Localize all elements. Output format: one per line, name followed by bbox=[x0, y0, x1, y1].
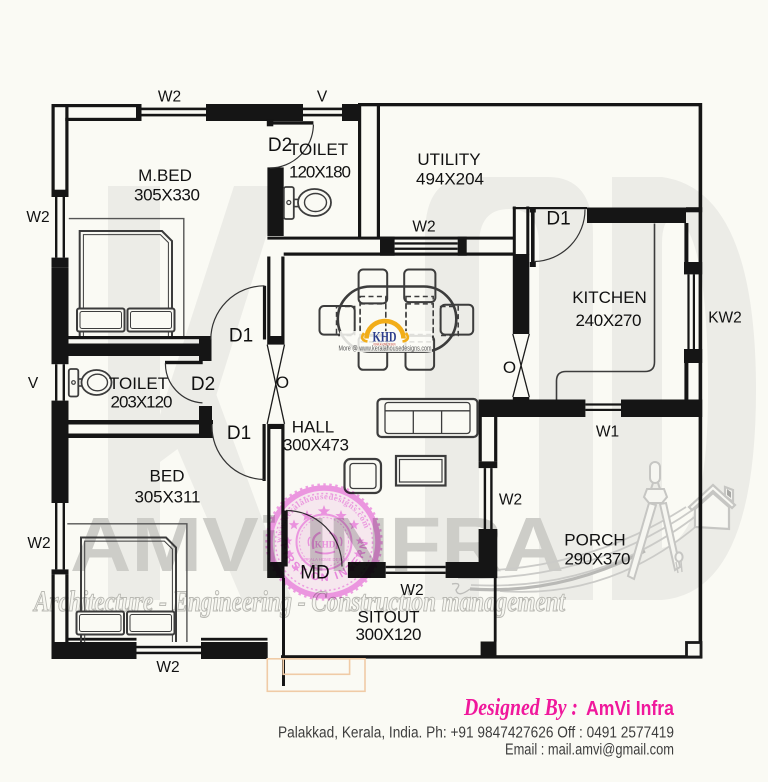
svg-text:TOILET: TOILET bbox=[289, 140, 348, 159]
svg-text:KW2: KW2 bbox=[708, 310, 742, 327]
svg-text:305X330: 305X330 bbox=[134, 186, 200, 205]
svg-text:Email : mail.amvi@gmail.com: Email : mail.amvi@gmail.com bbox=[505, 742, 674, 759]
svg-text:D2: D2 bbox=[191, 374, 215, 395]
svg-text:TOILET: TOILET bbox=[109, 374, 168, 393]
svg-text:W2: W2 bbox=[26, 209, 49, 226]
svg-text:D1: D1 bbox=[546, 209, 570, 230]
svg-text:W2: W2 bbox=[158, 89, 181, 106]
svg-text:D2: D2 bbox=[268, 135, 292, 156]
svg-text:W2: W2 bbox=[499, 492, 522, 509]
svg-text:D1: D1 bbox=[227, 423, 251, 444]
svg-text:D1: D1 bbox=[229, 326, 253, 347]
svg-text:305X311: 305X311 bbox=[135, 488, 201, 507]
svg-text:W2: W2 bbox=[27, 535, 50, 552]
svg-text:More @ www.keralahousedesigns.: More @ www.keralahousedesigns.com bbox=[339, 346, 432, 353]
svg-text:240X270: 240X270 bbox=[576, 311, 642, 330]
svg-text:M.BED: M.BED bbox=[138, 166, 192, 185]
svg-text:HALL: HALL bbox=[292, 418, 335, 437]
svg-text:O: O bbox=[503, 358, 516, 377]
svg-text:120X180: 120X180 bbox=[289, 163, 351, 182]
svg-text:KITCHEN: KITCHEN bbox=[572, 288, 647, 307]
svg-text:W2: W2 bbox=[412, 219, 435, 236]
svg-text:V: V bbox=[28, 375, 39, 392]
svg-text:494X204: 494X204 bbox=[416, 170, 484, 189]
svg-text:W2: W2 bbox=[156, 659, 179, 676]
svg-text:203X120: 203X120 bbox=[111, 393, 173, 412]
svg-text:BED: BED bbox=[150, 467, 185, 486]
svg-text:KERALA HOME DESIGN: KERALA HOME DESIGN bbox=[301, 557, 348, 562]
svg-text:W1: W1 bbox=[596, 424, 619, 441]
svg-text:AmVi Infra: AmVi Infra bbox=[586, 698, 675, 720]
svg-text:O: O bbox=[276, 373, 289, 392]
svg-text:Designed By :: Designed By : bbox=[463, 695, 578, 721]
svg-text:W2: W2 bbox=[400, 582, 423, 599]
svg-text:KHD: KHD bbox=[315, 540, 336, 550]
svg-text:PORCH: PORCH bbox=[564, 531, 625, 550]
svg-text:Palakkad, Kerala, India. Ph:: Palakkad, Kerala, India. Ph: +91 9847427… bbox=[278, 725, 674, 742]
svg-text:V: V bbox=[317, 89, 328, 106]
svg-text:SITOUT: SITOUT bbox=[357, 608, 419, 627]
svg-text:300X120: 300X120 bbox=[356, 625, 422, 644]
svg-text:UTILITY: UTILITY bbox=[417, 150, 480, 169]
svg-text:290X370: 290X370 bbox=[565, 550, 631, 569]
svg-text:300X473: 300X473 bbox=[283, 436, 349, 455]
